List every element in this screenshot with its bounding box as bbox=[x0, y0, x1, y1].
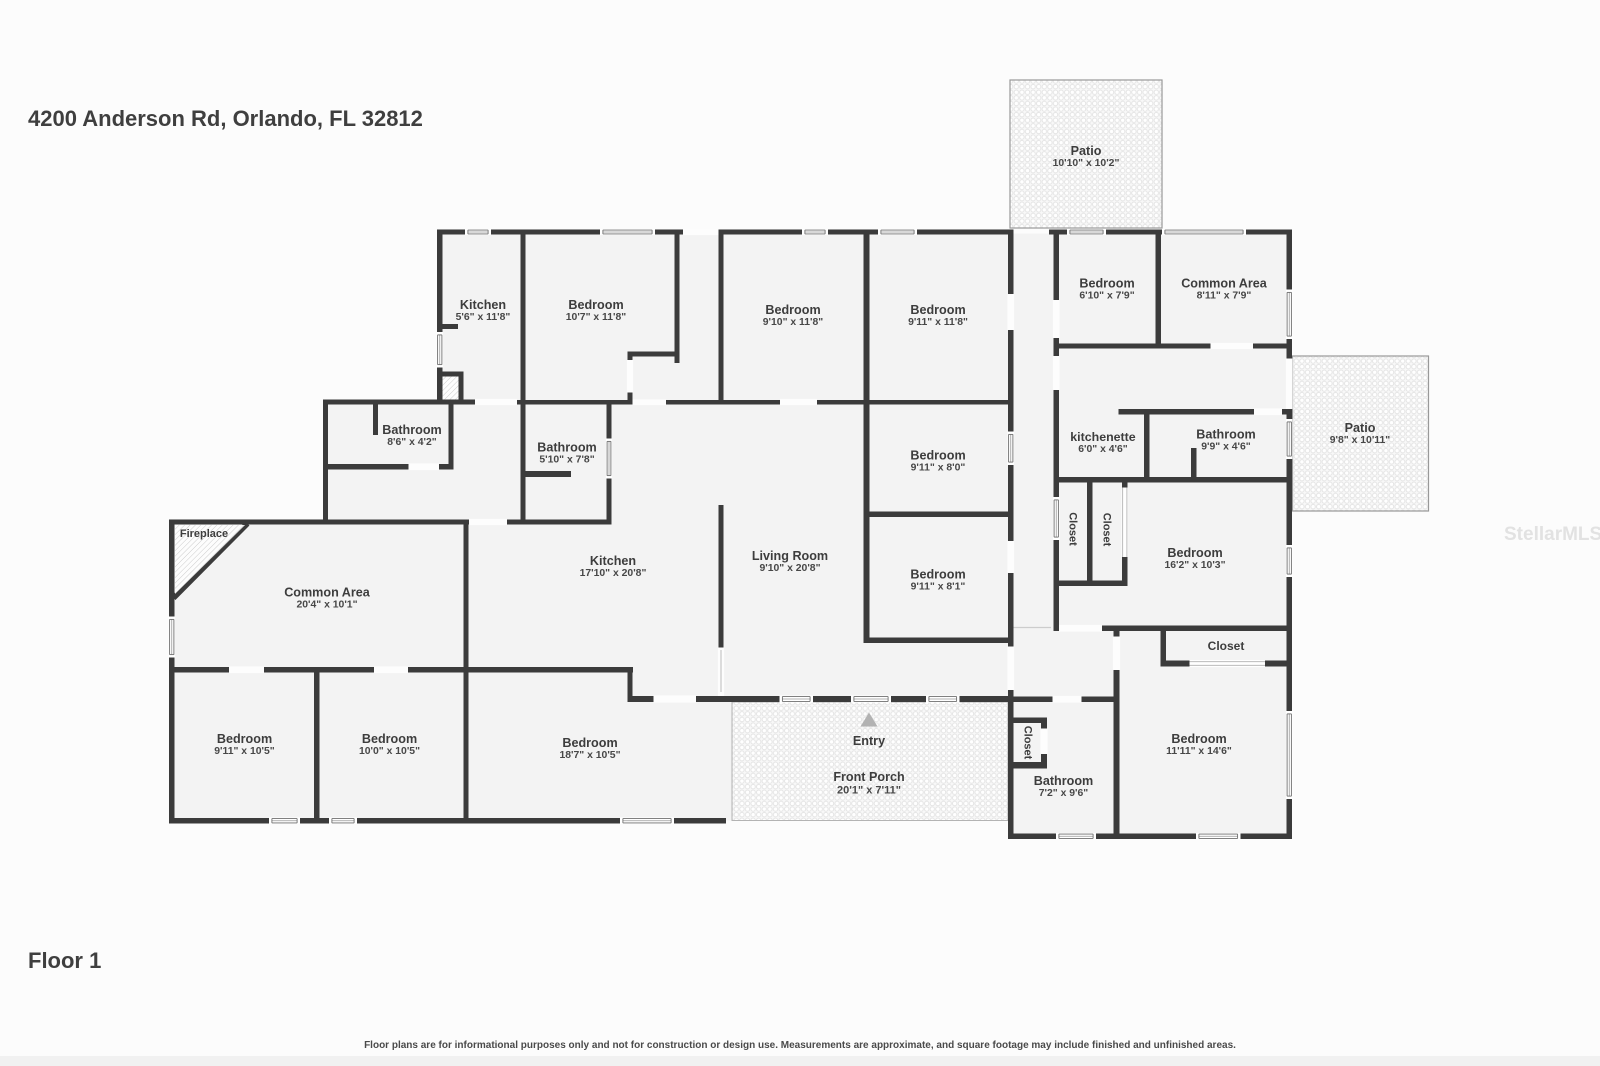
svg-text:Floor 1: Floor 1 bbox=[28, 948, 101, 973]
svg-text:Patio: Patio bbox=[1345, 421, 1376, 435]
svg-text:20'4" x 10'1": 20'4" x 10'1" bbox=[296, 600, 357, 611]
svg-text:5'6" x 11'8": 5'6" x 11'8" bbox=[456, 312, 511, 323]
svg-text:Bedroom: Bedroom bbox=[910, 303, 965, 317]
svg-text:Kitchen: Kitchen bbox=[590, 554, 636, 568]
svg-text:9'11" x 8'0": 9'11" x 8'0" bbox=[911, 463, 966, 474]
svg-text:9'11" x 10'5": 9'11" x 10'5" bbox=[214, 746, 275, 757]
svg-text:9'11" x 11'8": 9'11" x 11'8" bbox=[908, 317, 968, 328]
svg-text:Bedroom: Bedroom bbox=[910, 449, 965, 463]
svg-text:9'10" x 11'8": 9'10" x 11'8" bbox=[763, 317, 824, 328]
svg-text:6'0" x 4'6": 6'0" x 4'6" bbox=[1078, 444, 1128, 455]
svg-text:Bedroom: Bedroom bbox=[1171, 732, 1226, 746]
svg-text:Living Room: Living Room bbox=[752, 549, 828, 563]
svg-text:11'11" x 14'6": 11'11" x 14'6" bbox=[1166, 746, 1232, 757]
svg-text:Closet: Closet bbox=[1022, 726, 1034, 760]
svg-text:8'6" x 4'2": 8'6" x 4'2" bbox=[387, 437, 437, 448]
svg-text:Bathroom: Bathroom bbox=[1196, 428, 1255, 442]
svg-text:8'11" x 7'9": 8'11" x 7'9" bbox=[1197, 291, 1252, 302]
svg-text:Bedroom: Bedroom bbox=[568, 298, 623, 312]
svg-text:10'7" x 11'8": 10'7" x 11'8" bbox=[566, 312, 627, 323]
svg-text:4200 Anderson Rd, Orlando, FL: 4200 Anderson Rd, Orlando, FL 32812 bbox=[28, 106, 423, 131]
svg-text:StellarMLS: StellarMLS bbox=[1504, 524, 1600, 545]
svg-text:9'11" x 8'1": 9'11" x 8'1" bbox=[911, 582, 966, 593]
svg-text:10'10" x 10'2": 10'10" x 10'2" bbox=[1053, 158, 1120, 169]
svg-text:Bedroom: Bedroom bbox=[562, 736, 617, 750]
svg-text:9'9" x 4'6": 9'9" x 4'6" bbox=[1201, 442, 1251, 453]
svg-text:Floor plans are for informatio: Floor plans are for informational purpos… bbox=[364, 1040, 1236, 1051]
svg-text:Closet: Closet bbox=[1067, 512, 1079, 546]
svg-text:Entry: Entry bbox=[853, 734, 885, 748]
svg-text:Bedroom: Bedroom bbox=[910, 568, 965, 582]
svg-text:Fireplace: Fireplace bbox=[180, 528, 228, 540]
svg-text:Bedroom: Bedroom bbox=[765, 303, 820, 317]
svg-text:20'1" x 7'11": 20'1" x 7'11" bbox=[837, 785, 901, 797]
svg-text:Bedroom: Bedroom bbox=[362, 732, 417, 746]
svg-text:Patio: Patio bbox=[1071, 144, 1102, 158]
svg-text:Bedroom: Bedroom bbox=[1167, 546, 1222, 560]
svg-text:Common Area: Common Area bbox=[1181, 277, 1268, 291]
svg-text:10'0" x 10'5": 10'0" x 10'5" bbox=[359, 746, 420, 757]
svg-text:Kitchen: Kitchen bbox=[460, 298, 506, 312]
svg-text:Bedroom: Bedroom bbox=[1079, 277, 1134, 291]
svg-text:Bathroom: Bathroom bbox=[382, 423, 441, 437]
svg-text:kitchenette: kitchenette bbox=[1070, 430, 1136, 444]
svg-text:Closet: Closet bbox=[1208, 639, 1245, 653]
svg-text:9'10" x 20'8": 9'10" x 20'8" bbox=[759, 563, 820, 574]
svg-text:7'2" x 9'6": 7'2" x 9'6" bbox=[1039, 788, 1089, 799]
svg-text:Front Porch: Front Porch bbox=[833, 770, 904, 784]
svg-text:6'10" x 7'9": 6'10" x 7'9" bbox=[1079, 291, 1134, 302]
svg-text:Closet: Closet bbox=[1101, 513, 1113, 547]
svg-text:Common Area: Common Area bbox=[284, 586, 371, 600]
svg-text:17'10" x 20'8": 17'10" x 20'8" bbox=[580, 568, 647, 579]
svg-text:18'7" x 10'5": 18'7" x 10'5" bbox=[559, 750, 620, 761]
svg-text:Bedroom: Bedroom bbox=[217, 732, 272, 746]
svg-text:16'2" x 10'3": 16'2" x 10'3" bbox=[1164, 560, 1225, 571]
svg-text:Bathroom: Bathroom bbox=[537, 441, 596, 455]
svg-text:9'8" x 10'11": 9'8" x 10'11" bbox=[1330, 435, 1391, 446]
svg-text:5'10" x 7'8": 5'10" x 7'8" bbox=[539, 455, 594, 466]
svg-text:Bathroom: Bathroom bbox=[1034, 774, 1093, 788]
